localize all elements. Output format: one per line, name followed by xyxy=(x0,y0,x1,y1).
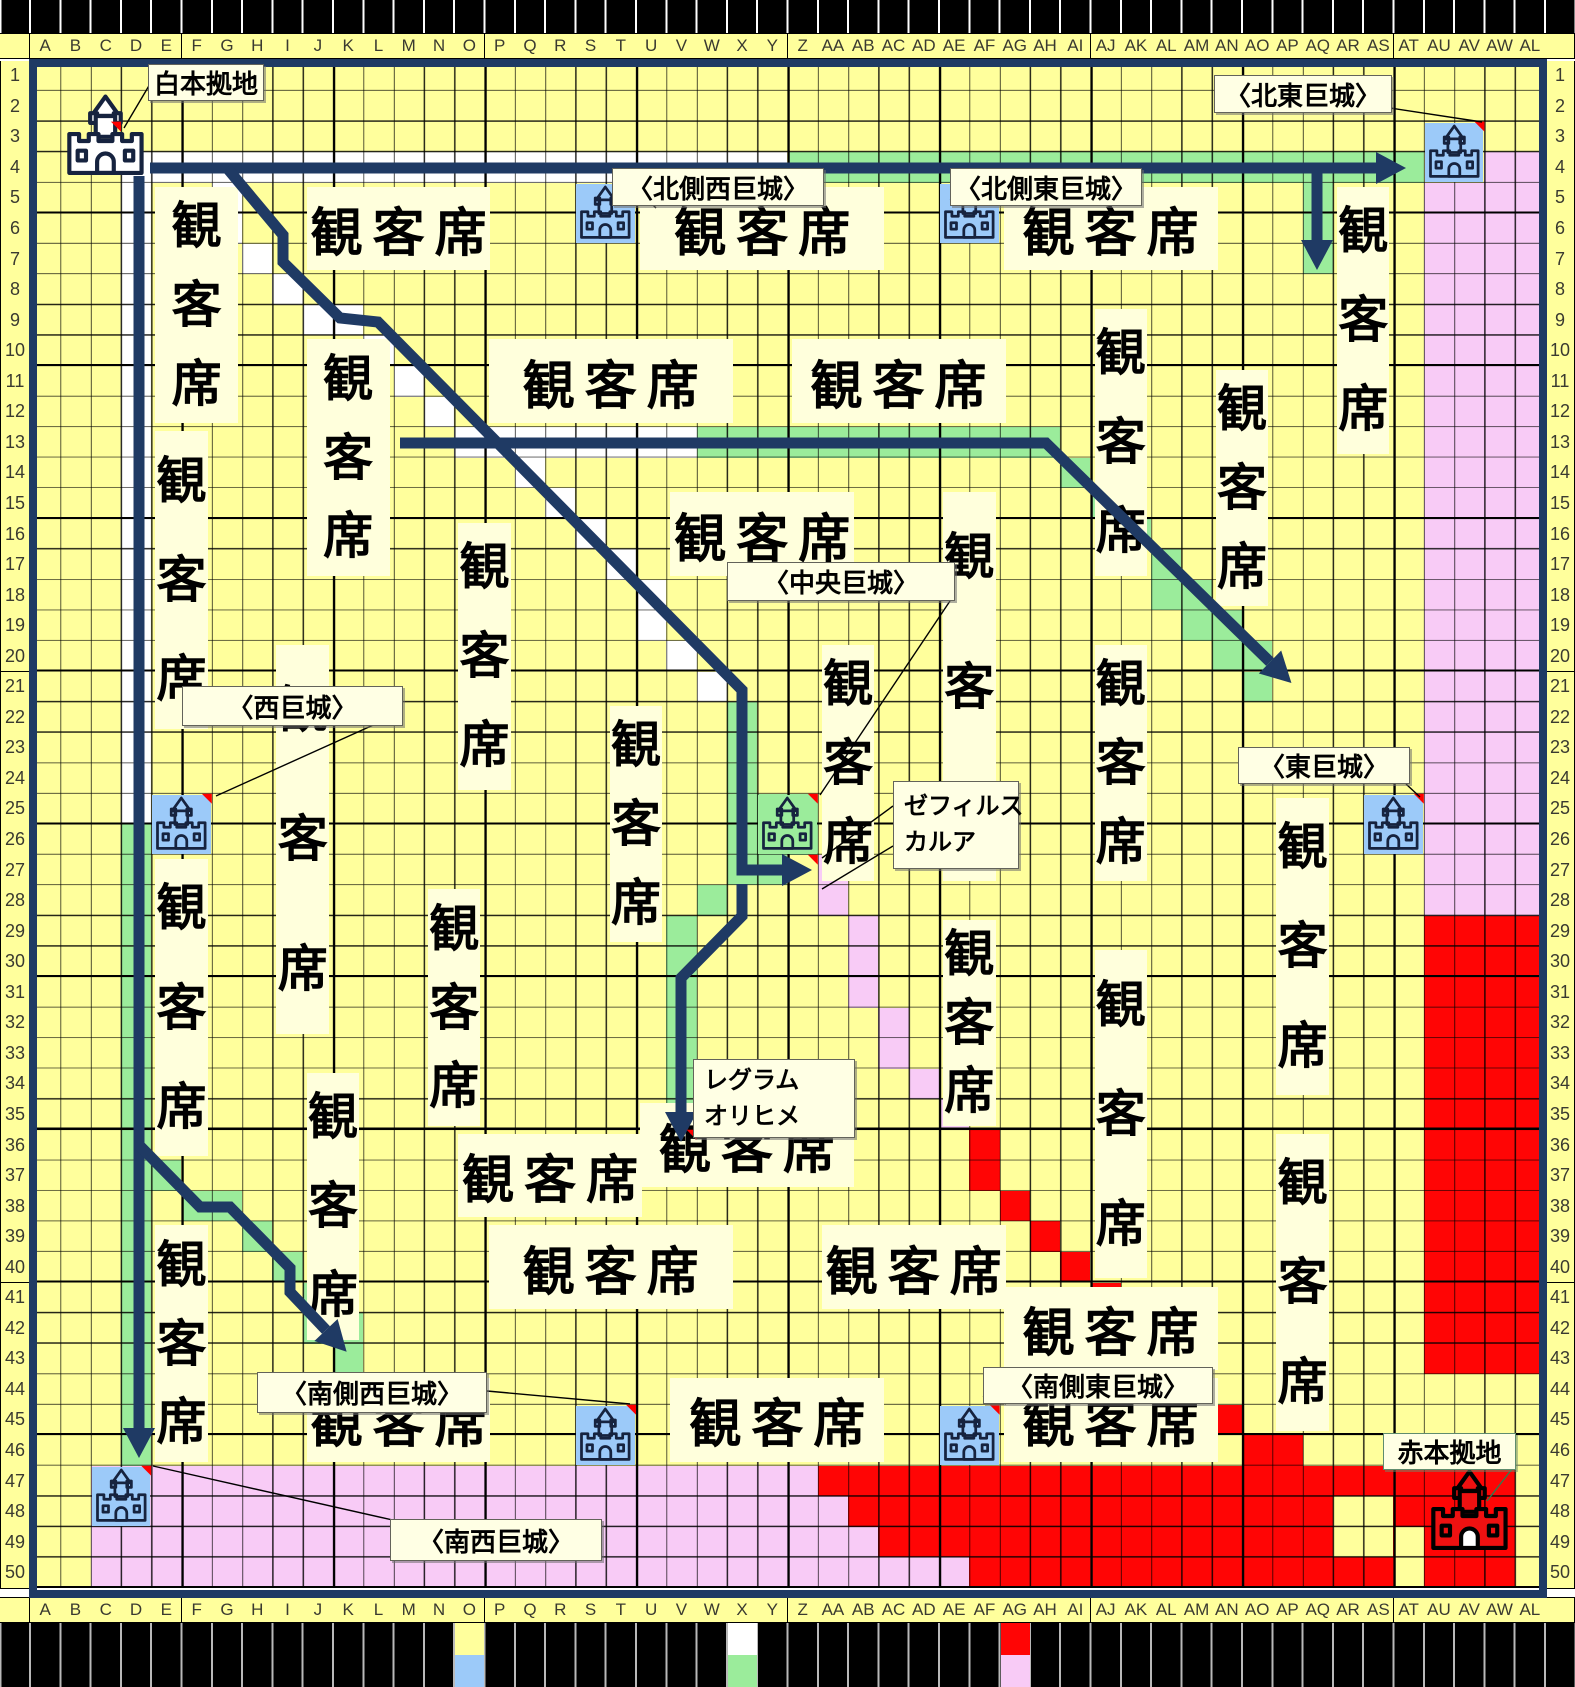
row-number-30[interactable]: 30 xyxy=(0,946,30,978)
column-header-AR-43[interactable]: AR xyxy=(1333,33,1364,59)
row-number-23[interactable]: 23 xyxy=(1545,733,1575,765)
region-green xyxy=(1303,183,1333,275)
region-green xyxy=(242,1221,272,1252)
region-yellow xyxy=(1515,1496,1545,1527)
region-white xyxy=(545,488,575,519)
row-number-28[interactable]: 28 xyxy=(0,885,30,917)
row-number-15[interactable]: 15 xyxy=(1545,488,1575,520)
column-header-AP-41[interactable]: AP xyxy=(1272,33,1303,59)
column-header-T-19[interactable]: T xyxy=(606,1597,637,1623)
row-number-39[interactable]: 39 xyxy=(1545,1221,1575,1253)
column-header-S-18[interactable]: S xyxy=(575,1597,606,1623)
label-regram-orihime: レグラムオリヒメ xyxy=(693,1059,855,1138)
column-header-AK-36[interactable]: AK xyxy=(1121,33,1152,59)
row-number-39[interactable]: 39 xyxy=(0,1221,30,1253)
row-number-34[interactable]: 34 xyxy=(0,1069,30,1101)
seat-char: 観 xyxy=(172,201,222,251)
column-header-AF-31[interactable]: AF xyxy=(969,1597,1000,1623)
row-number-22[interactable]: 22 xyxy=(0,702,30,734)
column-header-W-22[interactable]: W xyxy=(697,33,728,59)
header-corner-cell xyxy=(0,33,30,59)
seat-char: 観 xyxy=(1338,206,1388,256)
seat-char: 客 xyxy=(823,738,873,788)
column-header-G-6[interactable]: G xyxy=(212,33,243,59)
row-number-21[interactable]: 21 xyxy=(1545,672,1575,704)
spectator-seats-block: 観客席 xyxy=(1276,1134,1329,1432)
region-green xyxy=(1151,549,1181,580)
column-header-K-10[interactable]: K xyxy=(333,33,364,59)
row-number-7[interactable]: 7 xyxy=(0,244,30,276)
row-number-6[interactable]: 6 xyxy=(0,213,30,245)
row-number-36[interactable]: 36 xyxy=(1545,1130,1575,1162)
region-green xyxy=(757,855,787,886)
spectator-seats-block: 観客席 xyxy=(155,1225,208,1461)
column-header-S-18[interactable]: S xyxy=(575,33,606,59)
column-header-AC-28[interactable]: AC xyxy=(878,1597,909,1623)
column-header-L-11[interactable]: L xyxy=(363,33,394,59)
castle-white-home-base[interactable] xyxy=(61,92,150,182)
row-number-13[interactable]: 13 xyxy=(0,427,30,459)
row-number-19[interactable]: 19 xyxy=(0,610,30,642)
seat-char: 客 xyxy=(278,814,328,864)
seat-char: 観 xyxy=(1217,384,1267,434)
column-header-E-4[interactable]: E xyxy=(151,33,182,59)
column-header-AL-37[interactable]: AL xyxy=(1151,33,1182,59)
seat-char: 客 xyxy=(1278,921,1328,971)
region-yellow xyxy=(1515,1466,1545,1497)
region-white xyxy=(242,244,272,275)
legend-swatch-red xyxy=(1001,1623,1030,1655)
row-number-45[interactable]: 45 xyxy=(0,1405,30,1437)
row-number-10[interactable]: 10 xyxy=(1545,335,1575,367)
region-yellow xyxy=(1515,1527,1545,1558)
label-white-home-base: 白本拠地 xyxy=(148,64,264,101)
row-number-50[interactable]: 50 xyxy=(1545,1557,1575,1589)
row-number-40[interactable]: 40 xyxy=(1545,1252,1575,1284)
column-header-AK-36[interactable]: AK xyxy=(1121,1597,1152,1623)
column-header-AB-27[interactable]: AB xyxy=(848,1597,879,1623)
top-black-band xyxy=(0,0,1575,33)
region-green xyxy=(212,1191,242,1222)
region-green xyxy=(1242,672,1272,703)
column-header-N-13[interactable]: N xyxy=(424,33,455,59)
row-number-35[interactable]: 35 xyxy=(0,1099,30,1131)
row-number-45[interactable]: 45 xyxy=(1545,1405,1575,1437)
row-number-17[interactable]: 17 xyxy=(0,549,30,581)
row-number-14[interactable]: 14 xyxy=(0,458,30,490)
column-header-F-5[interactable]: F xyxy=(182,1597,213,1623)
column-header-AL-49[interactable]: AL xyxy=(1515,33,1546,59)
castle-north-east-castle[interactable] xyxy=(1425,123,1484,182)
row-number-47[interactable]: 47 xyxy=(1545,1466,1575,1498)
column-header-AD-29[interactable]: AD xyxy=(909,1597,940,1623)
label-red-home-base: 赤本拠地 xyxy=(1383,1433,1516,1470)
callout-line: オリヒメ xyxy=(704,1099,800,1135)
row-number-16[interactable]: 16 xyxy=(0,519,30,551)
column-header-R-17[interactable]: R xyxy=(545,1597,576,1623)
row-number-20[interactable]: 20 xyxy=(0,641,30,673)
spectator-seats-block: 観客席 xyxy=(489,339,733,423)
seat-char: 席 xyxy=(172,359,222,409)
battle-map-spreadsheet: ABCDEFGHIJKLMNOPQRSTUVWXYZAAABACADAEAFAG… xyxy=(0,0,1575,1687)
column-header-C-2[interactable]: C xyxy=(91,1597,122,1623)
column-header-J-9[interactable]: J xyxy=(303,1597,334,1623)
column-header-H-7[interactable]: H xyxy=(242,1597,273,1623)
row-number-7[interactable]: 7 xyxy=(1545,244,1575,276)
seat-char: 観 xyxy=(156,1240,206,1290)
column-header-AJ-35[interactable]: AJ xyxy=(1091,1597,1122,1623)
seat-char: 席 xyxy=(611,878,661,928)
row-number-21[interactable]: 21 xyxy=(0,672,30,704)
row-number-4[interactable]: 4 xyxy=(1545,152,1575,184)
row-number-8[interactable]: 8 xyxy=(1545,274,1575,306)
column-header-AL-37[interactable]: AL xyxy=(1151,1597,1182,1623)
column-header-Z-25[interactable]: Z xyxy=(788,33,819,59)
row-number-32[interactable]: 32 xyxy=(0,1008,30,1040)
row-number-23[interactable]: 23 xyxy=(0,733,30,765)
spectator-seats-block: 観客席 xyxy=(428,889,481,1125)
column-header-V-21[interactable]: V xyxy=(666,1597,697,1623)
row-number-38[interactable]: 38 xyxy=(0,1191,30,1223)
column-header-AA-26[interactable]: AA xyxy=(818,33,849,59)
label-west-castle: 〈西巨城〉 xyxy=(182,686,403,726)
seat-char: 客 xyxy=(323,433,373,483)
column-header-AI-34[interactable]: AI xyxy=(1060,1597,1091,1623)
row-number-2[interactable]: 2 xyxy=(1545,91,1575,123)
spectator-seats-block: 観客席 xyxy=(307,187,491,271)
column-header-AF-31[interactable]: AF xyxy=(969,33,1000,59)
column-header-Y-24[interactable]: Y xyxy=(757,1597,788,1623)
column-header-D-3[interactable]: D xyxy=(121,33,152,59)
column-header-AT-45[interactable]: AT xyxy=(1394,33,1425,59)
row-number-37[interactable]: 37 xyxy=(0,1160,30,1192)
row-number-31[interactable]: 31 xyxy=(1545,977,1575,1009)
row-number-34[interactable]: 34 xyxy=(1545,1069,1575,1101)
column-header-X-23[interactable]: X xyxy=(727,33,758,59)
column-header-AS-44[interactable]: AS xyxy=(1363,33,1394,59)
castle-south-side-west-castle[interactable] xyxy=(576,1406,635,1465)
label-north-side-west-castle: 〈北側西巨城〉 xyxy=(612,168,824,206)
spectator-seats-block: 観客席 xyxy=(822,1225,1006,1309)
row-number-8[interactable]: 8 xyxy=(0,274,30,306)
row-number-6[interactable]: 6 xyxy=(1545,213,1575,245)
region-pink xyxy=(878,1557,908,1588)
seat-char: 席 xyxy=(429,1061,479,1111)
region-pink xyxy=(818,885,848,916)
column-header-AE-30[interactable]: AE xyxy=(939,1597,970,1623)
row-number-36[interactable]: 36 xyxy=(0,1130,30,1162)
column-header-AM-38[interactable]: AM xyxy=(1181,33,1212,59)
region-pink xyxy=(1424,183,1545,916)
seat-char: 観 xyxy=(823,659,873,709)
row-number-48[interactable]: 48 xyxy=(0,1496,30,1528)
spectator-seats-block: 観客席 xyxy=(1004,1287,1218,1371)
region-green xyxy=(697,885,727,916)
row-number-25[interactable]: 25 xyxy=(0,794,30,826)
row-number-44[interactable]: 44 xyxy=(1545,1374,1575,1406)
row-number-5[interactable]: 5 xyxy=(0,183,30,215)
row-number-33[interactable]: 33 xyxy=(1545,1038,1575,1070)
region-pink xyxy=(848,977,878,1008)
row-number-26[interactable]: 26 xyxy=(0,824,30,856)
row-number-1[interactable]: 1 xyxy=(1545,61,1575,93)
row-number-48[interactable]: 48 xyxy=(1545,1496,1575,1528)
row-number-10[interactable]: 10 xyxy=(0,335,30,367)
row-number-37[interactable]: 37 xyxy=(1545,1160,1575,1192)
row-number-4[interactable]: 4 xyxy=(0,152,30,184)
column-header-AT-45[interactable]: AT xyxy=(1394,1597,1425,1623)
row-number-5[interactable]: 5 xyxy=(1545,183,1575,215)
row-number-9[interactable]: 9 xyxy=(0,305,30,337)
column-header-AD-29[interactable]: AD xyxy=(909,33,940,59)
castle-west-castle[interactable] xyxy=(152,795,211,854)
seat-char: 観 xyxy=(156,456,206,506)
column-header-U-20[interactable]: U xyxy=(636,1597,667,1623)
column-header-AW-48[interactable]: AW xyxy=(1484,1597,1515,1623)
seat-char: 席 xyxy=(278,944,328,994)
header-corner-cell xyxy=(0,1597,30,1623)
column-header-AU-46[interactable]: AU xyxy=(1424,33,1455,59)
column-header-AQ-42[interactable]: AQ xyxy=(1303,33,1334,59)
seat-char: 客 xyxy=(172,280,222,330)
column-header-AH-33[interactable]: AH xyxy=(1030,33,1061,59)
row-number-18[interactable]: 18 xyxy=(0,580,30,612)
row-number-14[interactable]: 14 xyxy=(1545,458,1575,490)
row-number-17[interactable]: 17 xyxy=(1545,549,1575,581)
spectator-seats-block: 観客席 xyxy=(943,920,996,1126)
region-red xyxy=(1424,916,1545,1374)
column-header-B-1[interactable]: B xyxy=(60,1597,91,1623)
seat-char: 席 xyxy=(323,511,373,561)
region-green xyxy=(1151,580,1181,611)
column-header-W-22[interactable]: W xyxy=(697,1597,728,1623)
row-number-18[interactable]: 18 xyxy=(1545,580,1575,612)
column-header-AR-43[interactable]: AR xyxy=(1333,1597,1364,1623)
row-number-47[interactable]: 47 xyxy=(0,1466,30,1498)
column-header-E-4[interactable]: E xyxy=(151,1597,182,1623)
region-red xyxy=(1000,1191,1030,1222)
column-header-L-11[interactable]: L xyxy=(363,1597,394,1623)
column-header-V-21[interactable]: V xyxy=(666,33,697,59)
row-number-26[interactable]: 26 xyxy=(1545,824,1575,856)
column-header-A-0[interactable]: A xyxy=(30,33,61,59)
column-header-B-1[interactable]: B xyxy=(60,33,91,59)
row-number-42[interactable]: 42 xyxy=(1545,1313,1575,1345)
column-header-AB-27[interactable]: AB xyxy=(848,33,879,59)
column-header-AM-38[interactable]: AM xyxy=(1181,1597,1212,1623)
legend-swatch-blue xyxy=(455,1655,484,1687)
label-central-castle: 〈中央巨城〉 xyxy=(727,562,955,601)
row-number-33[interactable]: 33 xyxy=(0,1038,30,1070)
column-header-AG-32[interactable]: AG xyxy=(1000,33,1031,59)
seat-char: 席 xyxy=(1096,506,1146,556)
row-number-46[interactable]: 46 xyxy=(0,1435,30,1467)
row-number-16[interactable]: 16 xyxy=(1545,519,1575,551)
row-number-11[interactable]: 11 xyxy=(0,366,30,398)
region-yellow xyxy=(1333,1496,1363,1527)
seat-char: 席 xyxy=(459,720,509,770)
row-number-20[interactable]: 20 xyxy=(1545,641,1575,673)
region-pink xyxy=(909,1069,939,1100)
row-number-29[interactable]: 29 xyxy=(0,916,30,948)
column-header-Y-24[interactable]: Y xyxy=(757,33,788,59)
column-header-AI-34[interactable]: AI xyxy=(1060,33,1091,59)
region-red xyxy=(1030,1221,1060,1252)
column-header-AO-40[interactable]: AO xyxy=(1242,33,1273,59)
row-number-32[interactable]: 32 xyxy=(1545,1008,1575,1040)
row-number-9[interactable]: 9 xyxy=(1545,305,1575,337)
region-white xyxy=(515,458,545,489)
castle-red-home-base[interactable] xyxy=(1425,1467,1514,1557)
column-header-H-7[interactable]: H xyxy=(242,33,273,59)
row-number-28[interactable]: 28 xyxy=(1545,885,1575,917)
row-number-1[interactable]: 1 xyxy=(0,61,30,93)
row-number-40[interactable]: 40 xyxy=(0,1252,30,1284)
row-number-25[interactable]: 25 xyxy=(1545,794,1575,826)
legend-swatch-white xyxy=(728,1623,757,1655)
region-red xyxy=(969,1160,999,1191)
row-number-43[interactable]: 43 xyxy=(1545,1344,1575,1376)
spectator-seats-block: 観客席 xyxy=(458,523,511,790)
column-header-AP-41[interactable]: AP xyxy=(1272,1597,1303,1623)
row-number-38[interactable]: 38 xyxy=(1545,1191,1575,1223)
seat-char: 客 xyxy=(944,662,994,712)
column-header-I-8[interactable]: I xyxy=(272,1597,303,1623)
column-header-T-19[interactable]: T xyxy=(606,33,637,59)
row-number-29[interactable]: 29 xyxy=(1545,916,1575,948)
column-header-C-2[interactable]: C xyxy=(91,33,122,59)
row-number-46[interactable]: 46 xyxy=(1545,1435,1575,1467)
row-number-31[interactable]: 31 xyxy=(0,977,30,1009)
row-number-41[interactable]: 41 xyxy=(0,1283,30,1315)
region-white xyxy=(303,305,333,336)
region-green xyxy=(727,702,757,885)
column-header-AE-30[interactable]: AE xyxy=(939,33,970,59)
row-number-24[interactable]: 24 xyxy=(0,763,30,795)
row-number-43[interactable]: 43 xyxy=(0,1344,30,1376)
region-white xyxy=(333,305,363,336)
column-header-Z-25[interactable]: Z xyxy=(788,1597,819,1623)
column-header-AU-46[interactable]: AU xyxy=(1424,1597,1455,1623)
seat-char: 観 xyxy=(1096,980,1146,1030)
column-header-Q-16[interactable]: Q xyxy=(515,1597,546,1623)
row-number-22[interactable]: 22 xyxy=(1545,702,1575,734)
column-header-A-0[interactable]: A xyxy=(30,1597,61,1623)
castle-east-castle[interactable] xyxy=(1364,795,1423,854)
column-header-I-8[interactable]: I xyxy=(272,33,303,59)
row-number-13[interactable]: 13 xyxy=(1545,427,1575,459)
castle-central-castle[interactable] xyxy=(758,795,817,854)
column-header-AL-49[interactable]: AL xyxy=(1515,1597,1546,1623)
column-header-O-14[interactable]: O xyxy=(454,33,485,59)
column-header-AA-26[interactable]: AA xyxy=(818,1597,849,1623)
seat-char: 観 xyxy=(1096,328,1146,378)
column-header-F-5[interactable]: F xyxy=(182,33,213,59)
column-header-J-9[interactable]: J xyxy=(303,33,334,59)
castle-south-west-castle[interactable] xyxy=(92,1467,151,1526)
column-header-G-6[interactable]: G xyxy=(212,1597,243,1623)
castle-south-side-east-castle[interactable] xyxy=(940,1406,999,1465)
row-number-44[interactable]: 44 xyxy=(0,1374,30,1406)
region-yellow xyxy=(1363,1496,1393,1527)
region-red xyxy=(1272,1435,1302,1466)
column-header-AG-32[interactable]: AG xyxy=(1000,1597,1031,1623)
column-header-O-14[interactable]: O xyxy=(454,1597,485,1623)
column-header-N-13[interactable]: N xyxy=(424,1597,455,1623)
column-header-M-12[interactable]: M xyxy=(394,33,425,59)
row-number-41[interactable]: 41 xyxy=(1545,1283,1575,1315)
region-pink xyxy=(848,1557,878,1588)
column-header-AW-48[interactable]: AW xyxy=(1484,33,1515,59)
region-red xyxy=(1242,1435,1272,1466)
row-number-24[interactable]: 24 xyxy=(1545,763,1575,795)
column-header-K-10[interactable]: K xyxy=(333,1597,364,1623)
column-header-AC-28[interactable]: AC xyxy=(878,33,909,59)
region-white xyxy=(424,397,454,428)
row-number-42[interactable]: 42 xyxy=(0,1313,30,1345)
column-header-D-3[interactable]: D xyxy=(121,1597,152,1623)
region-green xyxy=(121,824,151,1466)
row-number-2[interactable]: 2 xyxy=(0,91,30,123)
row-number-11[interactable]: 11 xyxy=(1545,366,1575,398)
seat-char: 観 xyxy=(1278,1158,1328,1208)
row-number-49[interactable]: 49 xyxy=(1545,1527,1575,1559)
column-header-AN-39[interactable]: AN xyxy=(1212,1597,1243,1623)
spectator-seats-block: 観客席 xyxy=(489,1225,733,1309)
row-number-12[interactable]: 12 xyxy=(1545,397,1575,429)
column-header-AS-44[interactable]: AS xyxy=(1363,1597,1394,1623)
column-header-R-17[interactable]: R xyxy=(545,33,576,59)
column-header-AN-39[interactable]: AN xyxy=(1212,33,1243,59)
seat-char: 観 xyxy=(611,720,661,770)
column-header-AH-33[interactable]: AH xyxy=(1030,1597,1061,1623)
region-white xyxy=(454,427,696,458)
seat-char: 客 xyxy=(611,799,661,849)
column-header-AQ-42[interactable]: AQ xyxy=(1303,1597,1334,1623)
row-number-15[interactable]: 15 xyxy=(0,488,30,520)
row-number-12[interactable]: 12 xyxy=(0,397,30,429)
row-number-27[interactable]: 27 xyxy=(0,855,30,887)
column-header-M-12[interactable]: M xyxy=(394,1597,425,1623)
seat-char: 観 xyxy=(308,1092,358,1142)
column-header-AV-47[interactable]: AV xyxy=(1454,1597,1485,1623)
row-number-30[interactable]: 30 xyxy=(1545,946,1575,978)
row-number-27[interactable]: 27 xyxy=(1545,855,1575,887)
row-number-50[interactable]: 50 xyxy=(0,1557,30,1589)
spectator-seats-block: 観客席 xyxy=(610,706,663,942)
column-header-P-15[interactable]: P xyxy=(485,1597,516,1623)
column-header-U-20[interactable]: U xyxy=(636,33,667,59)
column-header-AJ-35[interactable]: AJ xyxy=(1091,33,1122,59)
row-number-19[interactable]: 19 xyxy=(1545,610,1575,642)
row-number-49[interactable]: 49 xyxy=(0,1527,30,1559)
seat-char: 席 xyxy=(1278,1021,1328,1071)
seat-char: 客 xyxy=(1338,295,1388,345)
row-number-3[interactable]: 3 xyxy=(1545,122,1575,154)
column-header-X-23[interactable]: X xyxy=(727,1597,758,1623)
column-header-P-15[interactable]: P xyxy=(485,33,516,59)
header-corner-cell xyxy=(1545,33,1575,59)
label-south-west-castle: 〈南西巨城〉 xyxy=(390,1519,602,1561)
column-header-AV-47[interactable]: AV xyxy=(1454,33,1485,59)
seat-char: 観 xyxy=(1278,822,1328,872)
column-header-AO-40[interactable]: AO xyxy=(1242,1597,1273,1623)
row-number-35[interactable]: 35 xyxy=(1545,1099,1575,1131)
row-number-3[interactable]: 3 xyxy=(0,122,30,154)
region-white xyxy=(636,580,666,611)
column-header-Q-16[interactable]: Q xyxy=(515,33,546,59)
region-pink xyxy=(1484,152,1545,183)
